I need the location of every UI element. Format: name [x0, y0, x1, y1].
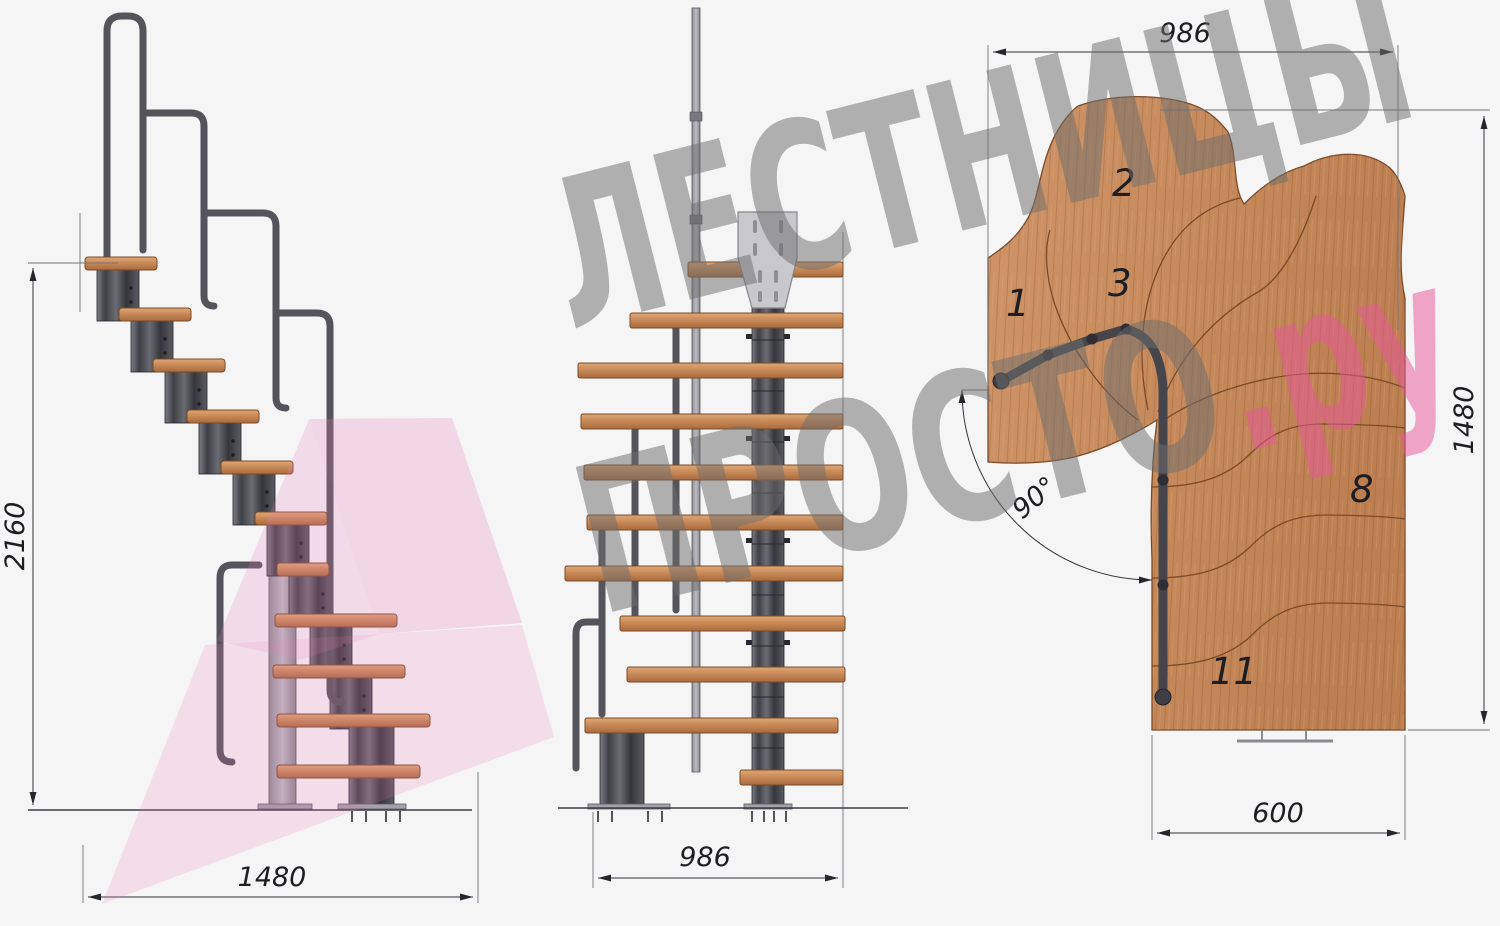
step-label-11: 11	[1210, 650, 1257, 693]
plan-base-plate	[1237, 730, 1333, 741]
staircase-technical-drawing: 2160 1480	[0, 0, 1500, 926]
dim-side-width: 1480	[238, 862, 307, 893]
watermark-ribbon-logo	[102, 418, 554, 904]
ribbon-lower-band	[102, 625, 554, 904]
side-height-dimension: 2160	[0, 263, 118, 805]
dim-front-width: 986	[679, 842, 731, 873]
dim-plan-exit: 600	[1252, 798, 1304, 829]
plan-exit-dimension: 600	[1152, 735, 1405, 840]
front-lower-column	[600, 731, 644, 808]
dim-side-height: 2160	[0, 502, 31, 571]
drawing-sheet: 2160 1480	[0, 0, 1500, 926]
watermark: ЛЕСТНИЦЫ ПРОСТО .ру	[102, 0, 1477, 904]
front-width-dimension: 986	[593, 812, 843, 888]
anchor-bolts	[352, 811, 400, 822]
